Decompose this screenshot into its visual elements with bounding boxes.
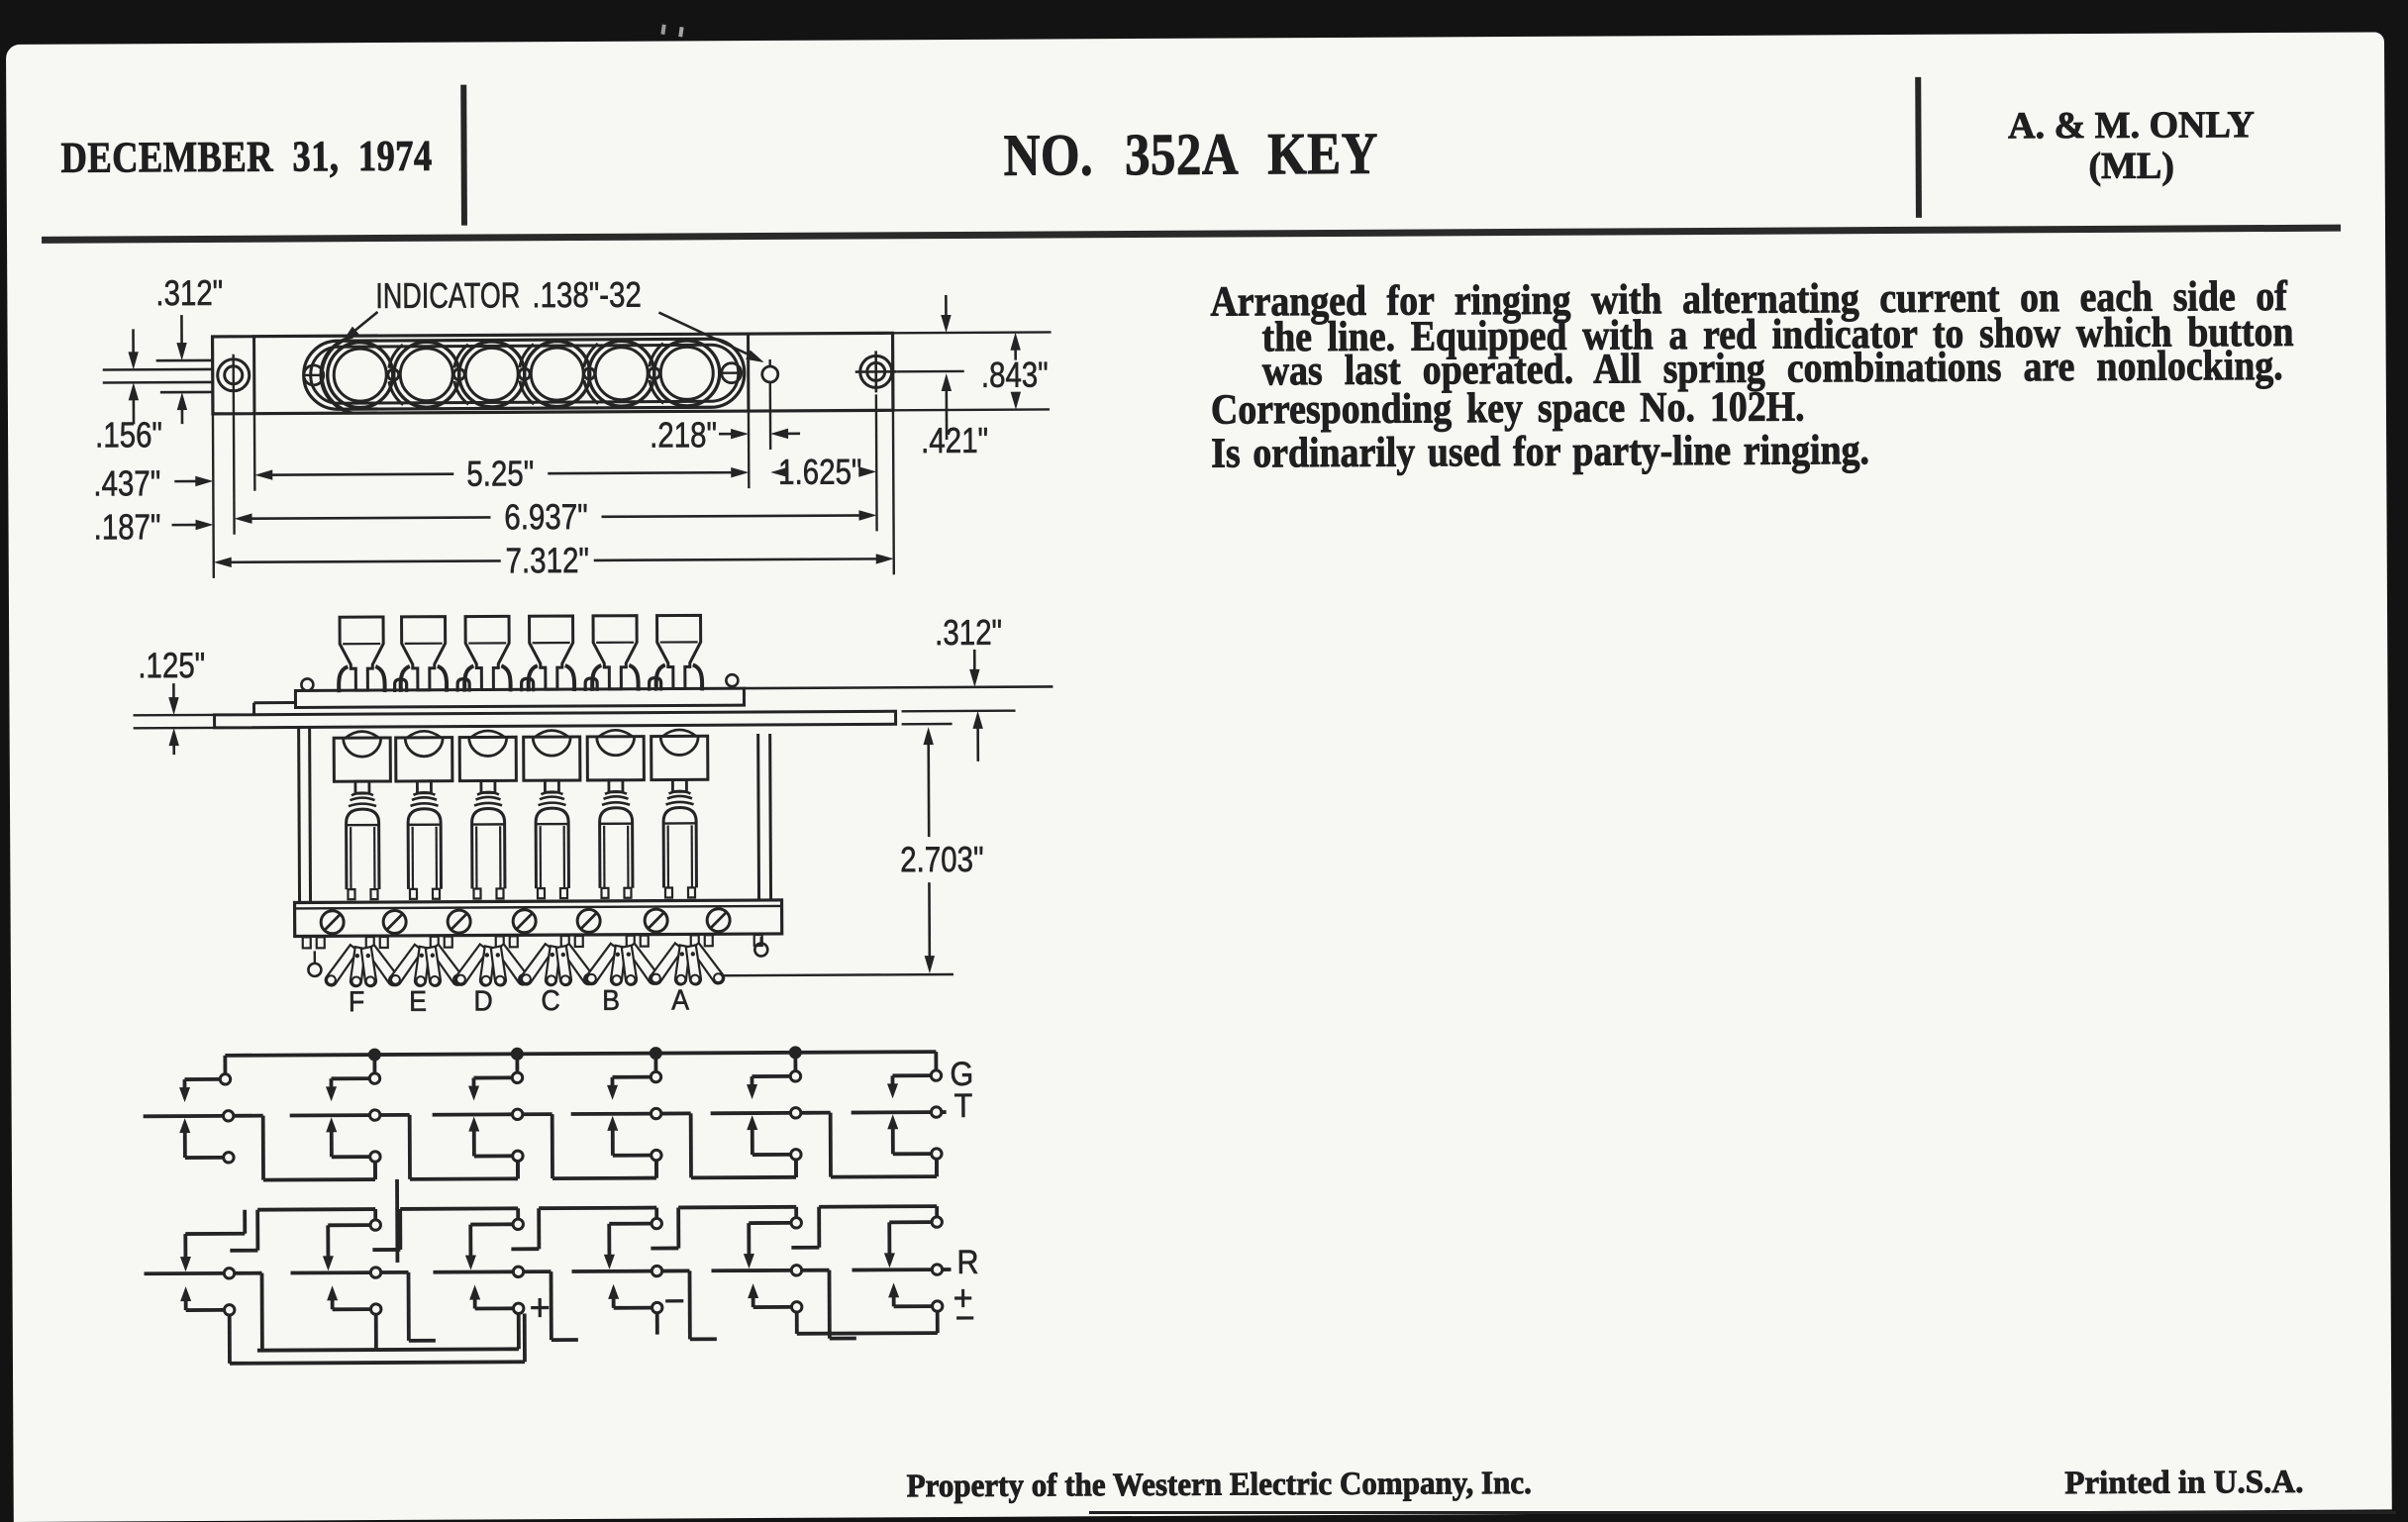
- svg-text:E: E: [409, 985, 427, 1017]
- svg-text:2.703": 2.703": [900, 839, 984, 879]
- svg-text:.138"-32: .138"-32: [532, 274, 642, 315]
- svg-text:.312": .312": [155, 272, 223, 313]
- svg-text:.437": .437": [93, 462, 160, 503]
- svg-text:.312": .312": [935, 612, 1002, 653]
- svg-text:A: A: [671, 983, 689, 1015]
- svg-text:.421": .421": [921, 420, 988, 460]
- svg-text:+: +: [530, 1285, 551, 1328]
- svg-text:.187": .187": [93, 506, 160, 547]
- svg-text:6.937": 6.937": [504, 496, 588, 537]
- svg-text:T: T: [954, 1086, 973, 1124]
- svg-text:C: C: [541, 984, 559, 1016]
- svg-text:.843": .843": [981, 355, 1049, 395]
- svg-text:INDICATOR: INDICATOR: [375, 274, 520, 315]
- svg-text:D: D: [473, 984, 492, 1016]
- svg-text:5.25": 5.25": [466, 453, 534, 493]
- svg-text:R: R: [956, 1243, 978, 1280]
- svg-text:F: F: [349, 985, 364, 1017]
- svg-text:1.625": 1.625": [778, 452, 862, 492]
- svg-text:7.312": 7.312": [505, 540, 589, 580]
- svg-text:.156": .156": [95, 414, 162, 455]
- svg-text:−: −: [664, 1279, 685, 1322]
- svg-text:B: B: [602, 984, 620, 1016]
- svg-text:.125": .125": [138, 645, 205, 685]
- svg-text:.218": .218": [650, 414, 717, 455]
- svg-text:−: −: [955, 1298, 975, 1338]
